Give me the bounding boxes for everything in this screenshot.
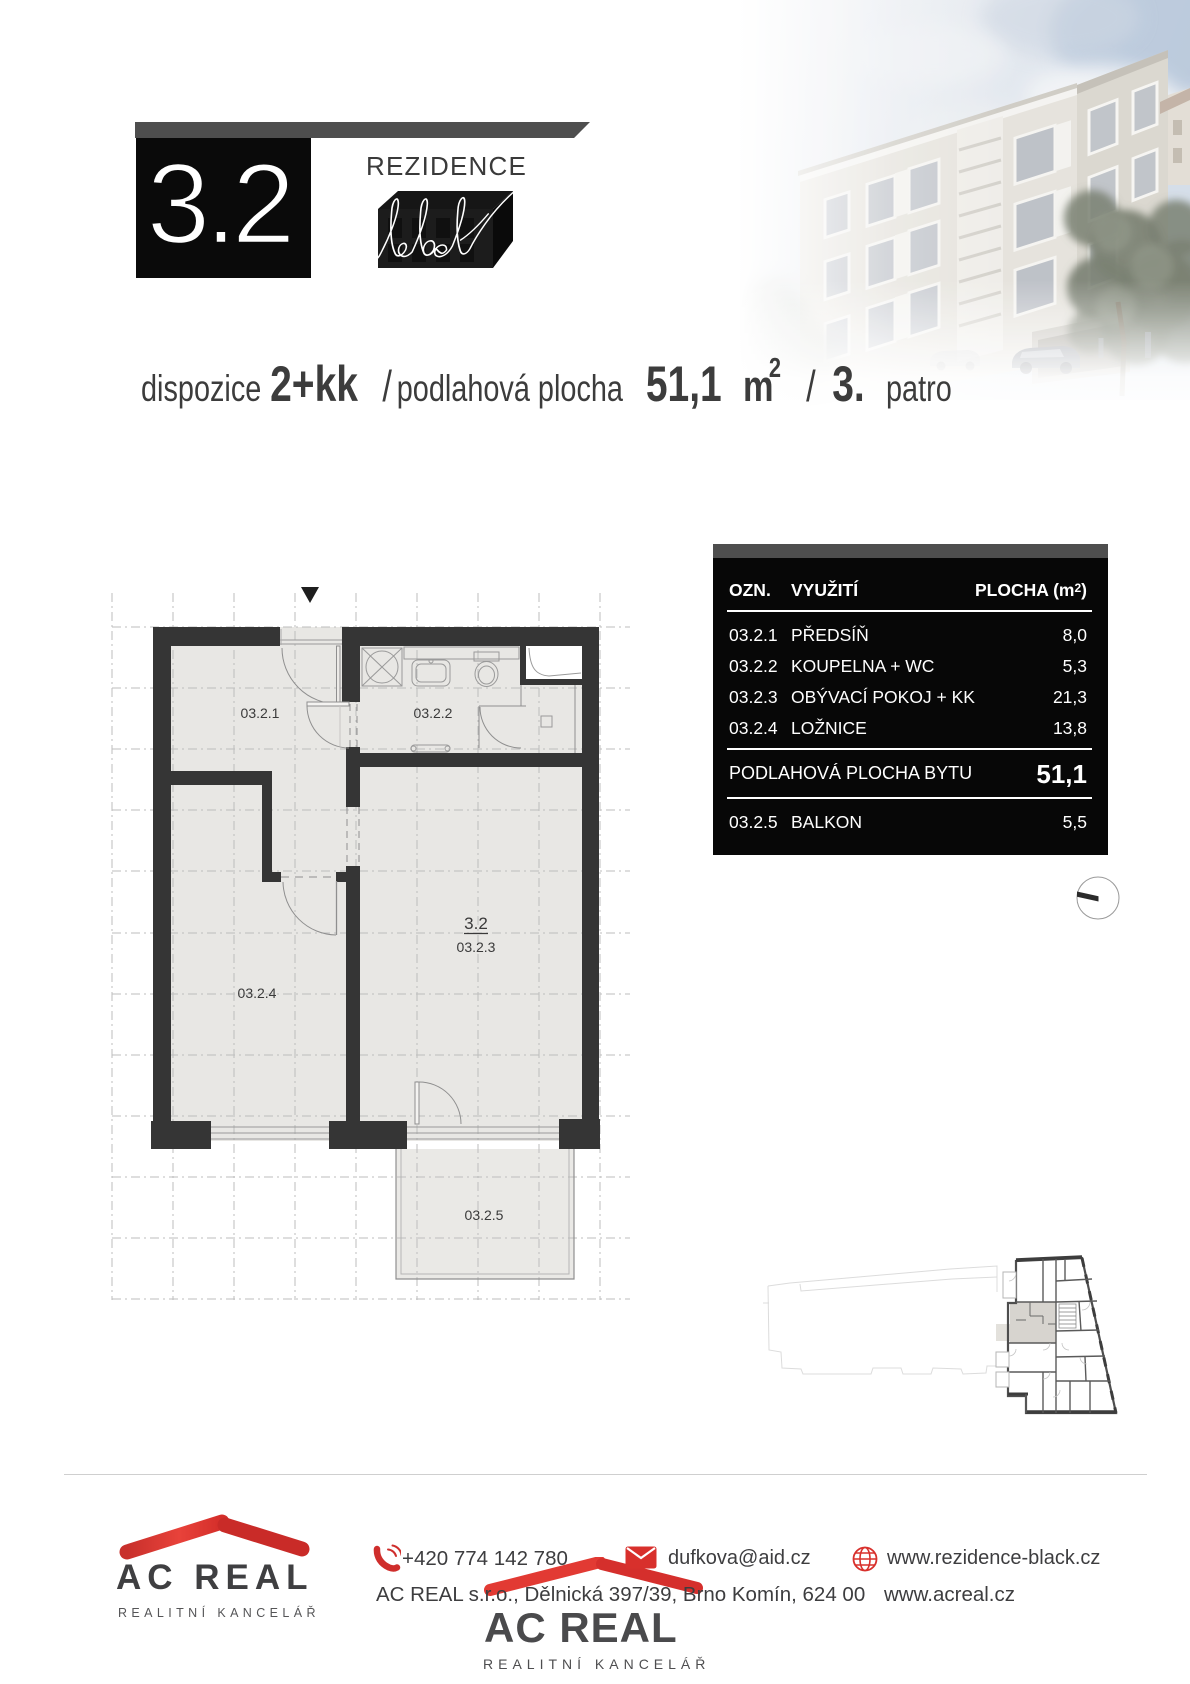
svg-text:03.2.1: 03.2.1 [241, 705, 280, 721]
svg-text:03.2.4: 03.2.4 [238, 985, 277, 1001]
svg-text:3.2: 3.2 [464, 914, 488, 933]
svg-text:03.2.2: 03.2.2 [414, 705, 453, 721]
svg-text:03.2.3: 03.2.3 [457, 939, 496, 955]
svg-text:03.2.5: 03.2.5 [465, 1207, 504, 1223]
